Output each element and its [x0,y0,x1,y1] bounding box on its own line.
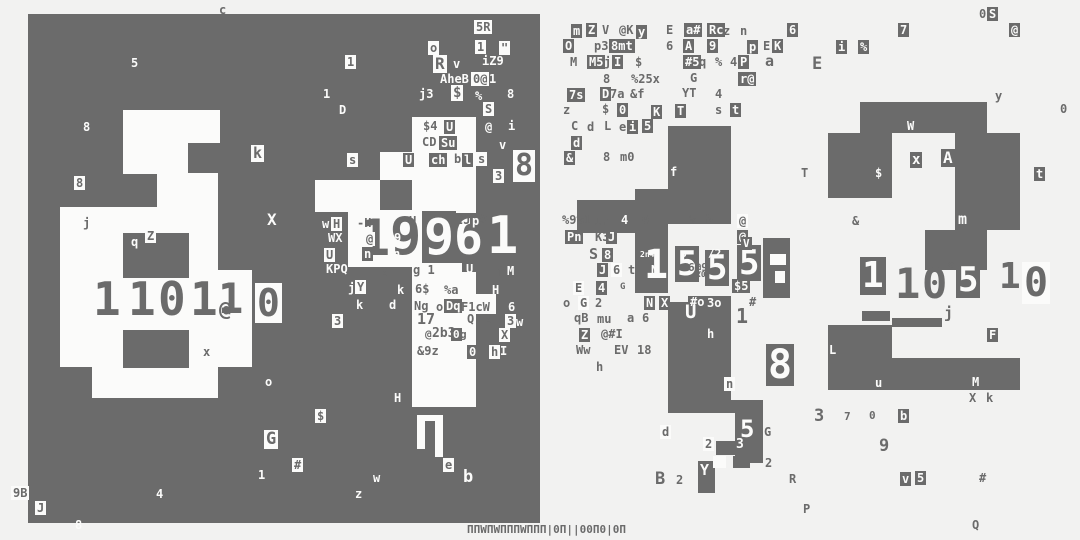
glyph: e [443,458,454,472]
glyph: Pn [565,230,583,244]
glyph: U [324,248,335,262]
glyph: 8 [603,73,610,85]
block [123,330,189,368]
glyph: 2 [484,313,491,325]
glyph: A [941,149,955,167]
block [123,142,188,174]
glyph: 1 [345,55,356,69]
glyph: 6 [642,312,649,324]
glyph: 0 [255,283,282,323]
glyph: &f [630,88,644,100]
glyph: 1 [128,276,156,322]
glyph: @ [425,329,432,340]
glyph: R [433,55,447,73]
glyph: m0 [620,151,634,163]
glyph: a# [684,23,702,37]
glyph: g [460,329,467,340]
glyph: 9 [948,262,954,272]
block [668,302,731,413]
glyph: y [995,90,1002,102]
glyph: H [331,217,342,231]
glyph: z [563,104,570,116]
glyph: o [563,297,570,309]
glyph: n [362,247,373,261]
glyph: Q [972,519,979,531]
block [763,238,790,298]
glyph: @ [483,120,494,134]
glyph: 9 [422,211,456,263]
glyph: f [497,266,504,278]
glyph: b [454,153,461,165]
glyph: 2 [765,457,772,469]
glyph: 5 [642,119,653,133]
glyph: 2n4 [640,251,654,259]
glyph: H [492,284,499,296]
glyph: E [763,40,770,52]
glyph: S [589,247,598,262]
glyph: t [1034,167,1045,181]
glyph: o [428,41,439,55]
glyph: G [578,296,589,310]
glyph: X [969,392,976,404]
glyph: V [741,237,752,250]
glyph: n [393,248,400,260]
glyph: P [680,251,687,262]
glyph: 2 [703,437,714,451]
block [828,133,892,198]
block [157,173,218,208]
glyph: T [675,104,686,118]
glyph: m [958,212,967,227]
glyph: 2 [380,266,387,278]
block [892,318,942,327]
block [828,358,1020,390]
glyph: I [612,55,623,69]
glyph: d [389,299,396,311]
glyph: CD [422,136,436,148]
glyph: 5 [915,471,926,485]
glyph: s [476,152,487,166]
glyph: B [655,471,665,488]
glyph: 1 [895,263,920,305]
glyph: " [499,41,510,55]
glyph: 8 [513,150,535,182]
glyph: Y [700,463,709,478]
glyph: 8 [766,344,794,386]
glyph: 8 [75,519,82,531]
glyph: z [723,25,730,37]
glyph: 3 [332,314,343,328]
glyph: 0 [617,103,628,117]
glyph: $ [451,85,463,101]
glyph: 1 [93,276,121,322]
glyph: k [356,299,363,311]
glyph: 4 [596,281,607,295]
glyph: E [573,281,584,295]
glyph: YT [682,87,696,99]
glyph: G [764,426,771,438]
glyph: c [219,4,226,16]
glyph: 2 [676,474,683,486]
glyph: X [267,212,277,228]
glyph: 4 [156,488,163,500]
glyph: k [397,284,404,296]
glyph: 6 [508,301,515,313]
glyph: 6 [611,263,622,277]
glyph: n [740,25,747,37]
glyph: w [373,472,380,484]
glyph: 3 [736,438,744,451]
glyph: 8 [83,121,90,133]
glyph: G [264,430,278,449]
glyph: G [620,283,625,292]
glyph: J [35,501,46,515]
glyph: 3 [493,169,504,183]
glyph: h [596,361,603,373]
glyph: M [972,376,979,388]
glyph: 8 [602,248,613,262]
block [92,367,218,398]
glyph: o [265,376,272,388]
glyph: EV [614,344,628,356]
glyph: j [944,306,953,321]
glyph: $4 [423,120,437,132]
glyph: m [571,24,582,38]
glyph: %25x [631,73,660,85]
glyph: # [979,472,986,484]
block [668,126,731,224]
glyph: d [571,136,582,150]
glyph: 1 [860,257,886,295]
glyph: 9 [879,438,889,455]
glyph: y [636,25,647,39]
glitch-art-canvas: 11011@01996115551109510c0S@7mZV@KyEa#Rcz… [0,0,1080,540]
glyph: 5 [131,57,138,69]
glyph: T [801,167,808,179]
glyph: ΠΠWΠWΠΠΠWΠΠΠ|0Π||00Π0|0Π [467,524,626,535]
glyph: 8mt [609,39,635,53]
block [770,254,786,265]
glyph: @ [1009,23,1020,37]
glyph: # [749,296,756,308]
glyph: 9 [707,39,718,53]
glyph: %9%1 [562,214,591,226]
glyph: K [651,105,662,119]
glyph: U [685,303,696,322]
glyph: 1 [489,73,496,85]
glyph: 0 [467,345,478,359]
glyph: s [347,153,358,167]
glyph: 8 [507,88,514,100]
glyph: x [203,346,210,358]
glyph: k [251,145,264,162]
glyph: & [564,151,575,165]
glyph: 7 [844,411,851,422]
glyph: @#I [601,328,623,340]
glyph: 4 [730,56,737,68]
glyph: E [666,24,673,36]
glyph: -H [357,217,371,229]
glyph: 6$ [415,283,429,295]
glyph: WX [328,232,342,244]
glyph: L [829,344,836,356]
glyph: I [500,345,507,357]
glyph: N [651,264,658,276]
glyph: X [499,328,510,342]
glyph: J [606,230,617,244]
glyph: v [453,58,460,70]
glyph: 1 [258,469,265,481]
glyph: P [738,55,749,69]
glyph: n [724,377,735,391]
glyph: 0 [922,263,947,305]
glyph: S [483,102,494,116]
glyph: 3 [814,408,824,425]
glyph: U [444,120,455,134]
glyph: l [462,153,473,167]
block [733,456,750,468]
glyph: 3 [505,314,516,328]
glyph: p [747,40,758,54]
glyph: k [986,392,993,404]
glyph: 6 [666,40,673,52]
glyph: 9 [394,232,401,244]
glyph: w [516,316,523,328]
glyph: H [394,392,401,404]
glyph: $5 [732,279,750,293]
glyph: 7a [610,88,624,100]
glyph: 9B [11,486,29,500]
glyph: Z [586,23,597,37]
glyph: % [689,214,696,226]
glyph: 1 [323,88,330,100]
glyph: S [987,7,998,21]
glyph: # [292,458,303,472]
glyph: @K [619,24,633,36]
glyph: N [706,213,713,225]
glyph: i [627,120,638,134]
glyph: J [597,263,608,277]
glyph: R [789,473,796,485]
glyph: v [499,139,506,151]
glyph: i [836,40,847,54]
glyph: u [875,377,882,389]
glyph: %a [444,284,458,296]
glyph: M5 [587,55,605,69]
glyph: r@ [738,72,756,86]
glyph: K [772,39,783,53]
glyph: U [409,215,416,227]
glyph: 3o [707,297,721,309]
glyph: v [900,472,911,486]
block [713,456,726,468]
glyph: o [436,301,443,313]
glyph: i [508,120,515,132]
glyph: G [690,72,697,84]
glyph: Su [439,136,457,150]
glyph: M [570,56,577,68]
glyph: P [803,503,810,515]
glyph: 6 [787,23,798,37]
glyph: d [587,121,594,133]
glyph: KPQ [326,263,348,275]
glyph: qB [574,312,588,324]
glyph: 2J [456,214,470,226]
glyph: % [858,40,869,54]
glyph: 7 [898,23,909,37]
glyph: t [730,103,741,117]
glyph: $ [635,56,642,68]
glyph: 0@ [471,72,489,86]
glyph: f [670,166,677,178]
glyph: @ [219,299,231,319]
glyph: O [563,39,574,53]
glyph: Dq [444,299,462,313]
glyph: mu [597,313,611,325]
glyph: @ [737,214,748,228]
glyph: /2 [708,248,721,259]
glyph: j [83,217,90,229]
glyph: 1 [487,210,518,262]
glyph: 5 [737,245,761,281]
glyph: 5R [474,20,492,34]
glyph: & [852,215,859,227]
glyph: 0 [1060,103,1067,115]
glyph: p3 [594,40,608,52]
glyph: X [659,296,670,310]
block [775,271,785,283]
glyph: 5 [956,262,980,298]
glyph: 1 [736,306,748,326]
glyph: h [707,328,714,340]
glyph: j3 [419,88,433,100]
glyph: U [403,153,414,167]
glyph: 1 [999,259,1021,295]
glyph: b [898,409,909,423]
glyph: 0 [869,410,876,421]
block [435,421,443,457]
glyph: 0 [1022,262,1050,304]
glyph: V [602,24,609,36]
glyph: D [339,104,346,116]
glyph: 2 [595,297,602,309]
glyph: 0 [979,8,986,20]
block [862,311,890,321]
glyph: 1r [594,215,608,227]
glyph: F [987,328,998,342]
glyph: Q [467,313,474,325]
block [315,180,380,212]
glyph: AheB [440,73,469,85]
glyph: iZ9 [482,55,504,67]
glyph: 8 [74,176,85,190]
block [716,441,735,455]
glyph: 1 [190,276,218,322]
glyph: d [660,425,671,439]
block [417,421,425,449]
glyph: $ [875,167,882,179]
glyph: x [910,152,922,168]
glyph: b [463,469,473,486]
block [123,110,220,143]
glyph: a [627,312,634,324]
glyph: 17 [417,312,435,327]
glyph: N [644,296,655,310]
glyph: $ [315,409,326,423]
glyph: C [571,120,578,132]
glyph: L [604,120,611,132]
block [860,102,987,133]
glyph: ch [429,153,447,167]
block [731,400,763,413]
glyph: 0 [642,214,649,226]
glyph: 1 [475,40,486,54]
glyph: # [479,213,486,225]
glyph: $ [602,103,609,115]
glyph: q [131,236,138,248]
glyph: 8 [603,151,610,163]
glyph: % [475,90,482,102]
glyph: e [619,121,626,133]
glyph: j [604,56,611,68]
glyph: W [905,119,916,133]
glyph: M [505,264,516,278]
glyph: Ww [576,344,590,356]
glyph: 0 [158,276,186,322]
glyph: a [765,54,774,69]
glyph: w [322,218,329,230]
glyph: Z [579,328,590,342]
glyph: q [699,56,706,68]
glyph: Z [145,229,156,243]
glyph: Y [355,280,366,294]
glyph: g 1 [413,264,435,276]
glyph: 4 [619,213,630,227]
glyph: 4 [715,88,722,100]
glyph: @ [364,232,375,246]
glyph: &9z [417,345,439,357]
glyph: x0 [696,271,706,279]
glyph: h [489,345,500,359]
glyph: 7s [567,88,585,102]
glyph: % [715,56,722,68]
glyph: t [628,264,635,276]
glyph: U [466,263,473,275]
glyph: 18 [637,344,651,356]
glyph: A [683,39,694,53]
glyph: E [812,56,822,73]
glyph: s [715,104,722,116]
glyph: z [355,488,362,500]
